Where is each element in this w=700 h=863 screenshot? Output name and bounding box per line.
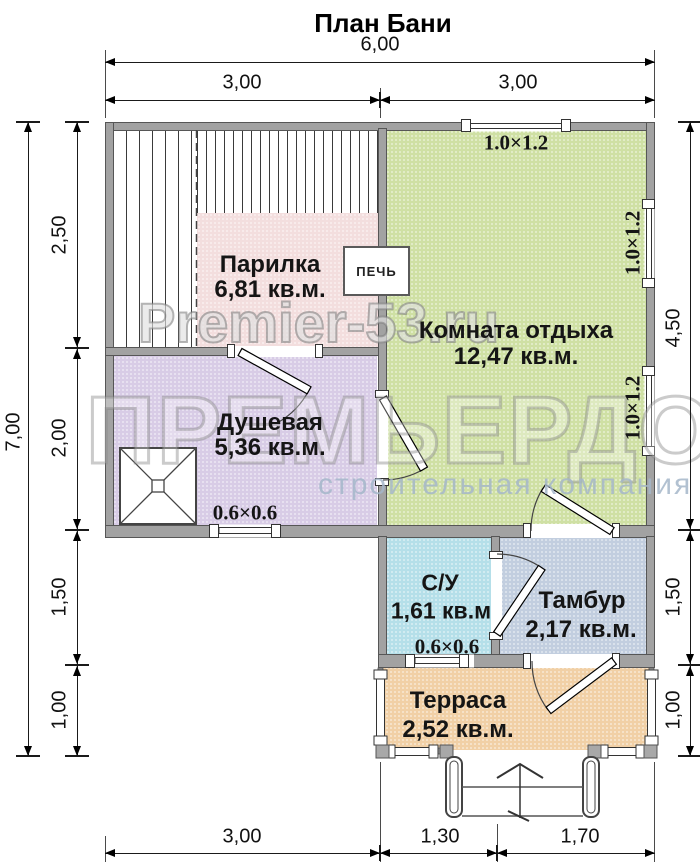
dim-top-total: 6,00 — [361, 34, 400, 57]
dim-bottom-2: 1,30 — [421, 826, 460, 849]
dim-top-left: 3,00 — [223, 72, 262, 95]
room-tambur-name: Тамбур — [538, 587, 625, 615]
plan-graphics — [0, 0, 700, 863]
window-top-label: 1.0×1.2 — [484, 131, 548, 156]
dim-left-total: 7,00 — [3, 413, 26, 452]
dim-left-1: 2,50 — [49, 216, 72, 255]
dim-left-3: 1,50 — [49, 578, 72, 617]
shower-tray — [120, 448, 196, 524]
room-komnata-area: 12,47 кв.м. — [454, 343, 579, 371]
room-dushevaya-area: 5,36 кв.м. — [214, 434, 325, 462]
ext-line — [654, 762, 655, 862]
dim-left-4: 1,00 — [49, 691, 72, 730]
window-shower-label: 0.6×0.6 — [213, 501, 277, 526]
dim-line-left-total — [28, 122, 29, 756]
door-komnata-tambur — [524, 485, 620, 538]
room-su-area: 1,61 кв.м — [391, 598, 491, 625]
stove-box: ПЕЧЬ — [343, 246, 410, 296]
room-terrasa-area: 2,52 кв.м. — [402, 716, 513, 744]
dim-bottom-1: 3,00 — [223, 826, 262, 849]
door-tambur-terrasa — [524, 654, 620, 714]
door-dushevaya-komnata — [376, 391, 428, 486]
room-parilka-name: Парилка — [220, 251, 321, 279]
bath-house-floor-plan: План Бани — [0, 0, 700, 863]
dim-right-3: 1,00 — [663, 691, 686, 730]
dim-top-right: 3,00 — [499, 72, 538, 95]
room-parilka-area: 6,81 кв.м. — [214, 276, 325, 304]
room-dushevaya-name: Душевая — [217, 409, 323, 437]
room-tambur-area: 2,17 кв.м. — [525, 616, 636, 644]
entrance-steps — [446, 757, 599, 821]
dim-left-2: 2,00 — [49, 419, 72, 458]
room-su-name: С/У — [421, 570, 458, 597]
window-right-upper-label: 1.0×1.2 — [621, 211, 646, 275]
room-komnata-name: Комната отдыха — [419, 317, 613, 345]
window-shower — [210, 525, 281, 538]
dim-bottom-3: 1,70 — [561, 826, 600, 849]
stove-label: ПЕЧЬ — [356, 264, 397, 279]
dim-right-2: 1,50 — [663, 578, 686, 617]
dim-line-top-total — [105, 62, 655, 63]
window-right-lower-label: 1.0×1.2 — [621, 376, 646, 440]
room-terrasa-name: Терраса — [410, 687, 506, 715]
window-wc-label: 0.6×0.6 — [415, 635, 479, 660]
dim-right-1: 4,50 — [663, 309, 686, 348]
